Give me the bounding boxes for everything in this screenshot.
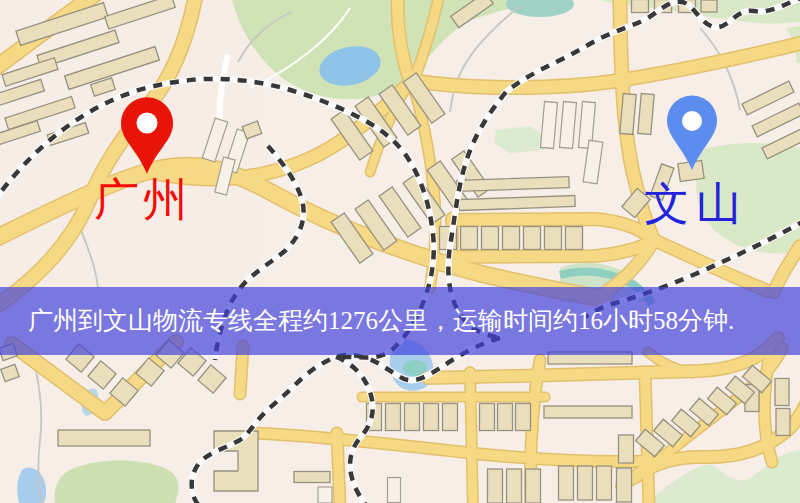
destination-pin-icon[interactable] [663,94,721,174]
destination-city-label: 文山 [644,182,748,227]
origin-pin-icon[interactable] [118,96,176,176]
route-info-text: 广州到文山物流专线全程约1276公里，运输时间约16小时58分钟. [28,307,734,334]
map-canvas[interactable] [0,0,800,503]
origin-city-label: 广州 [94,178,192,223]
route-info-banner: 广州到文山物流专线全程约1276公里，运输时间约16小时58分钟. [0,287,800,355]
map-container: 广州 文山 广州到文山物流专线全程约1276公里，运输时间约16小时58分钟. [0,0,800,503]
